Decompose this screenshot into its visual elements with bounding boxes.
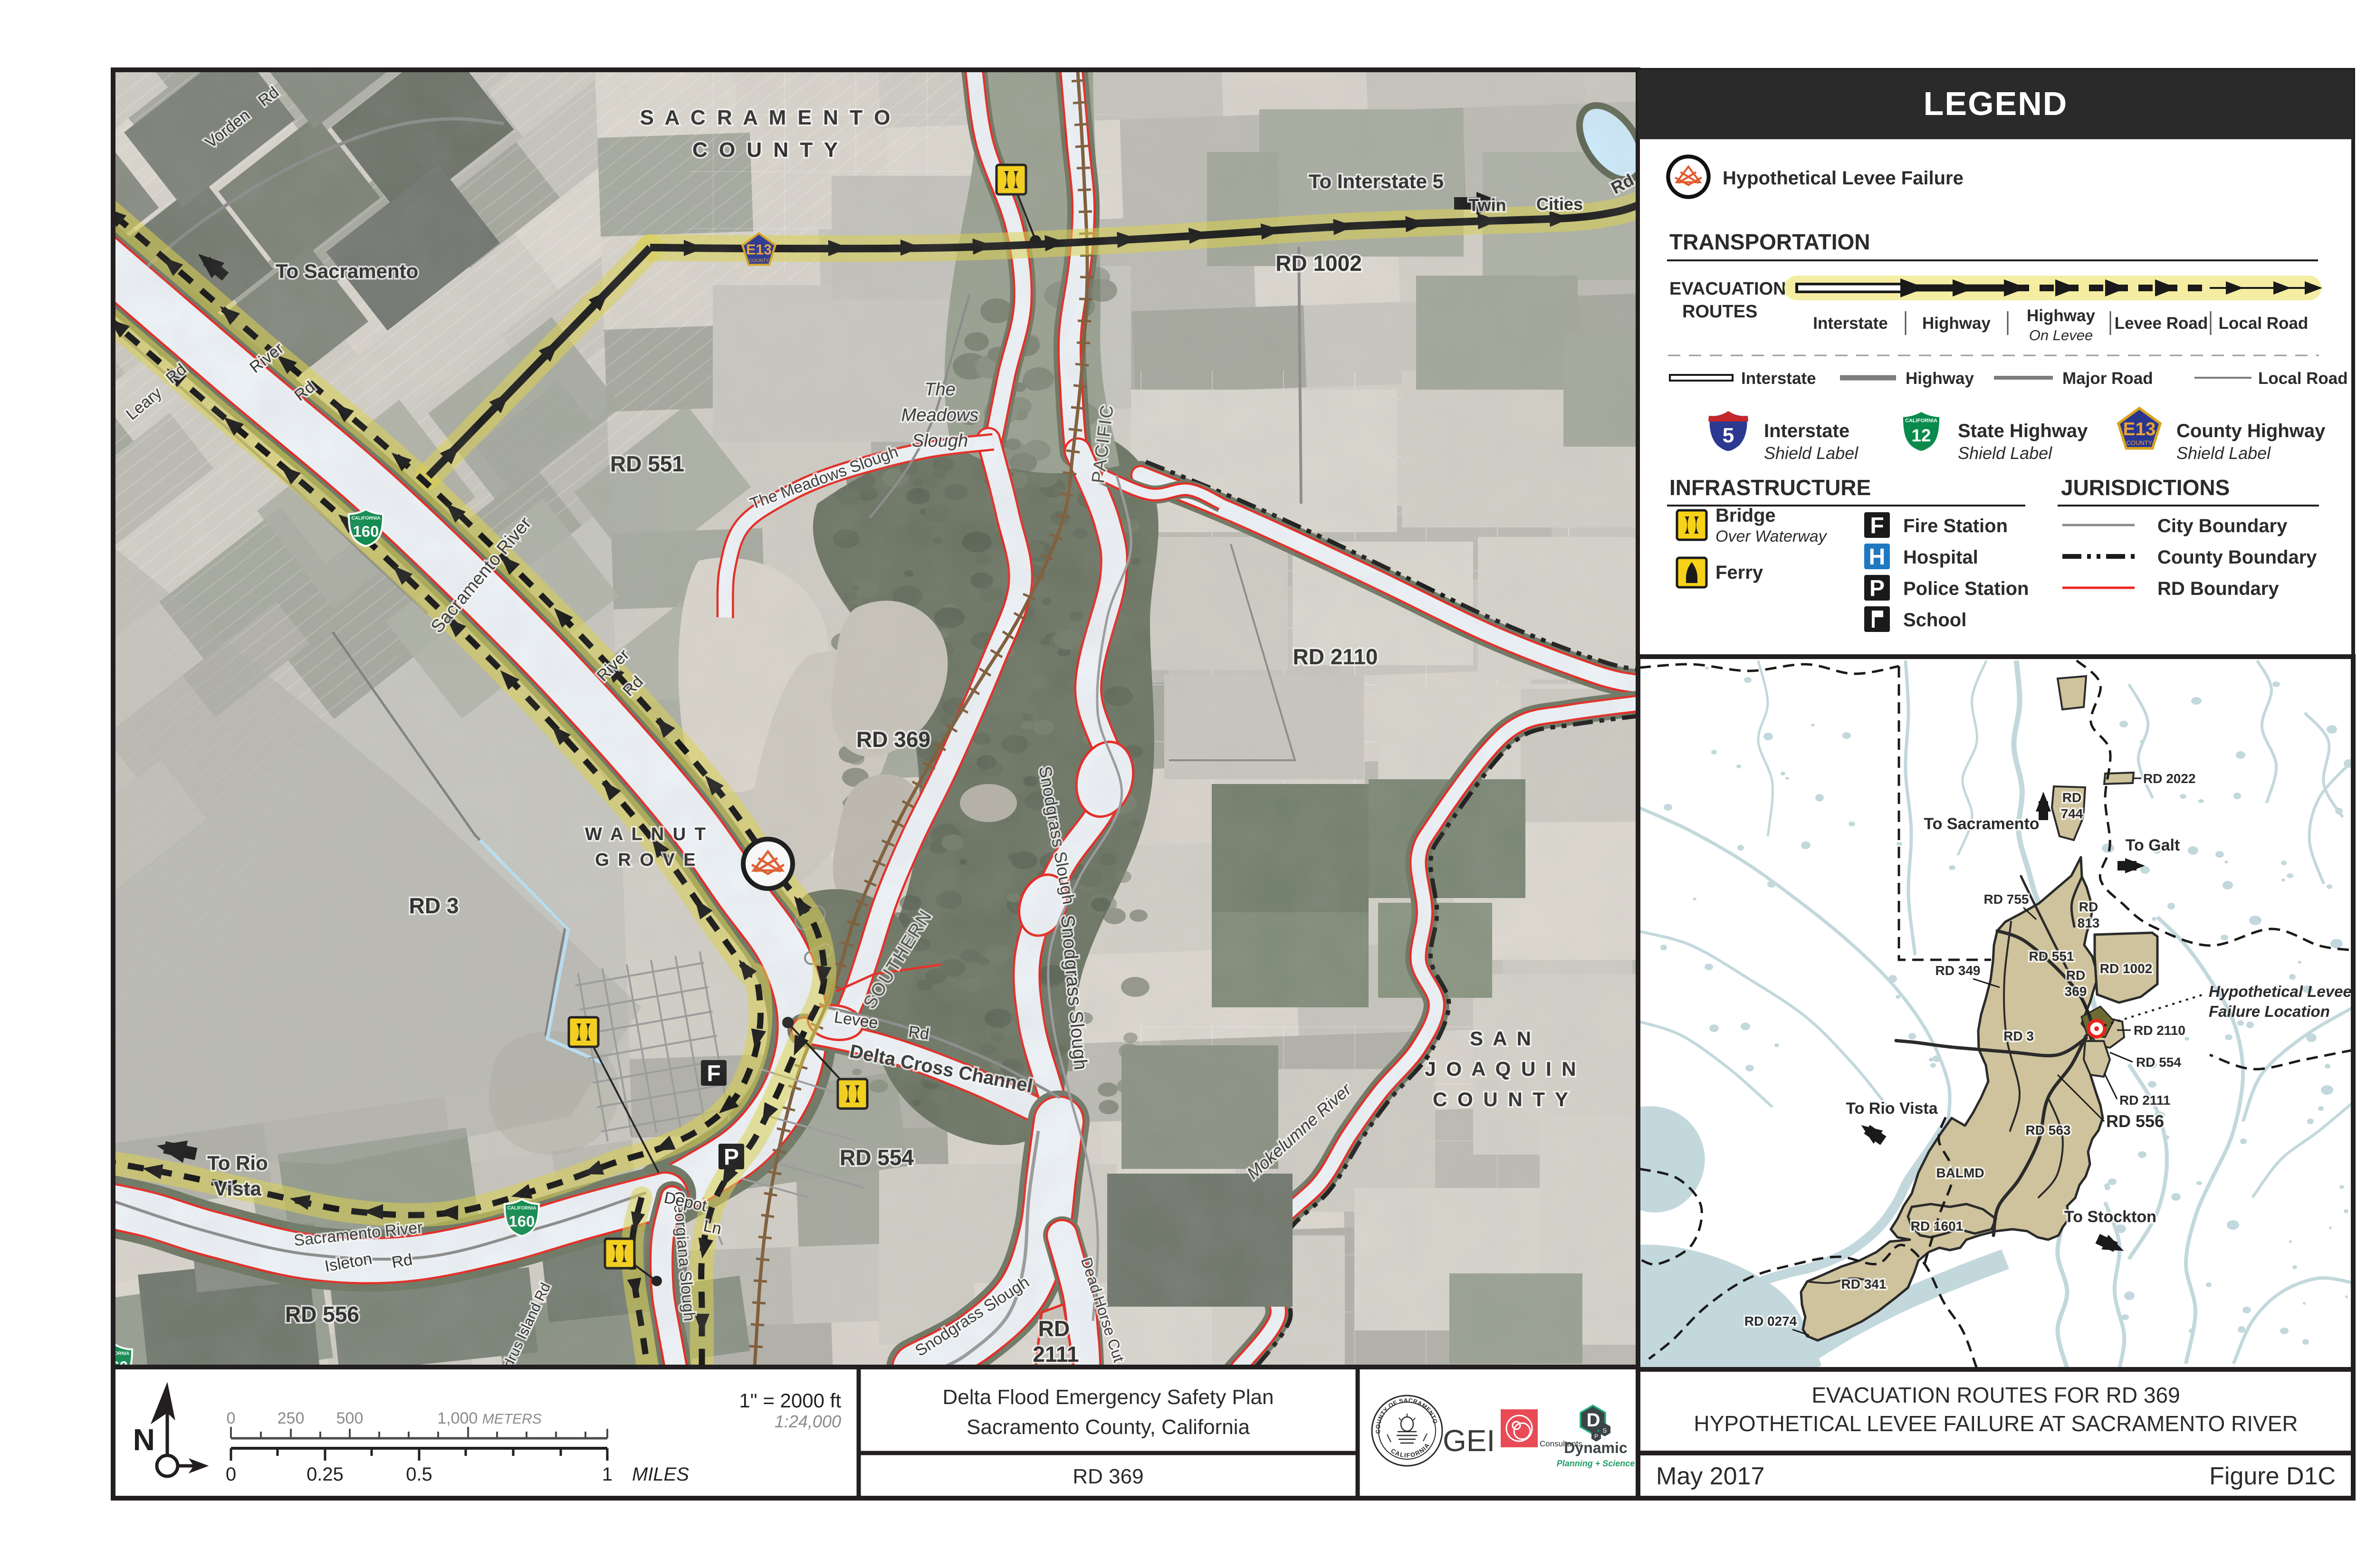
svg-text:Highway: Highway [1906,369,1974,388]
svg-text:Over Waterway: Over Waterway [1715,527,1828,545]
svg-text:City Boundary: City Boundary [2157,516,2288,536]
svg-text:1:24,000: 1:24,000 [775,1412,841,1431]
svg-text:Highway: Highway [2027,306,2095,325]
svg-text:Bridge: Bridge [1715,505,1776,526]
svg-text:RD 556: RD 556 [2106,1111,2164,1131]
svg-text:RD 0274: RD 0274 [1744,1314,1797,1329]
svg-text:To Galt: To Galt [2126,836,2180,854]
svg-text:0.5: 0.5 [406,1464,432,1485]
svg-text:INFRASTRUCTURE: INFRASTRUCTURE [1669,475,1871,500]
svg-text:Planning + Science: Planning + Science [1557,1459,1635,1468]
svg-text:Interstate: Interstate [1813,314,1888,333]
svg-text:Police Station: Police Station [1903,578,2029,599]
svg-text:E13: E13 [2123,419,2156,440]
svg-text:H: H [1869,545,1886,570]
svg-text:P: P [1594,1433,1598,1440]
svg-text:0.25: 0.25 [307,1464,344,1485]
svg-text:250: 250 [278,1409,305,1427]
svg-text:EVACUATION: EVACUATION [1669,279,1786,299]
svg-text:JURISDICTIONS: JURISDICTIONS [2061,475,2230,500]
svg-text:TRANSPORTATION: TRANSPORTATION [1669,229,1870,254]
svg-text:To Rio Vista: To Rio Vista [1846,1100,1938,1118]
svg-text:BALMD: BALMD [1936,1166,1984,1180]
svg-text:Shield Label: Shield Label [1958,443,2052,463]
svg-text:0: 0 [226,1464,236,1485]
svg-text:Sacramento County, California: Sacramento County, California [967,1415,1250,1439]
svg-text:RD 369: RD 369 [1073,1465,1143,1488]
svg-text:RD 554: RD 554 [2136,1055,2181,1070]
svg-text:D: D [1587,1410,1600,1431]
svg-text:HYPOTHETICAL LEVEE FAILURE AT: HYPOTHETICAL LEVEE FAILURE AT SACRAMENTO… [1694,1411,2298,1436]
svg-text:EVACUATION ROUTES FOR RD 369: EVACUATION ROUTES FOR RD 369 [1811,1383,2180,1407]
svg-text:1: 1 [602,1464,613,1485]
svg-text:N: N [133,1423,155,1457]
svg-text:5: 5 [1723,424,1734,447]
svg-text:Local Road: Local Road [2258,369,2348,388]
svg-text:RD 341: RD 341 [1841,1277,1887,1291]
svg-text:RD: RD [2066,968,2085,983]
svg-text:Shield Label: Shield Label [1764,443,1859,463]
svg-text:Ferry: Ferry [1715,562,1763,583]
svg-text:School: School [1903,610,1966,631]
svg-text:Shield Label: Shield Label [2176,443,2271,463]
svg-text:1" = 2000 ft: 1" = 2000 ft [739,1389,841,1412]
svg-text:RD 2110: RD 2110 [2134,1023,2185,1038]
svg-text:F: F [1870,513,1884,538]
svg-text:Local Road: Local Road [2219,314,2309,333]
svg-text:County Highway: County Highway [2176,421,2326,441]
svg-text:Fire Station: Fire Station [1903,516,2008,536]
svg-text:Hypothetical Levee Failure: Hypothetical Levee Failure [1723,168,1964,189]
svg-text:RD 3: RD 3 [2003,1029,2034,1043]
svg-text:To Sacramento: To Sacramento [1924,815,2039,833]
svg-text:RD 563: RD 563 [2026,1123,2071,1138]
svg-text:RD 551: RD 551 [2029,949,2074,964]
svg-text:Delta Flood Emergency Safety P: Delta Flood Emergency Safety Plan [942,1386,1274,1409]
svg-text:RD 349: RD 349 [1935,963,1981,978]
svg-text:Interstate: Interstate [1764,421,1849,441]
svg-text:Failure Location: Failure Location [2209,1003,2330,1020]
svg-text:744: 744 [2061,806,2083,821]
svg-text:RD 755: RD 755 [1984,892,2029,907]
svg-text:RD 1002: RD 1002 [2100,961,2153,976]
svg-text:RD: RD [2062,790,2081,805]
svg-text:May 2017: May 2017 [1656,1463,1764,1490]
svg-text:500: 500 [336,1409,364,1427]
svg-text:ROUTES: ROUTES [1682,302,1757,322]
svg-text:1,000 METERS: 1,000 METERS [437,1409,542,1427]
svg-text:Interstate: Interstate [1741,369,1816,388]
svg-text:Hospital: Hospital [1903,547,1978,568]
svg-text:RD 2111: RD 2111 [2119,1093,2170,1108]
svg-text:P: P [1869,576,1885,601]
svg-text:RD: RD [2079,899,2098,914]
svg-text:12: 12 [1912,426,1931,445]
svg-text:To Stockton: To Stockton [2064,1208,2156,1226]
svg-text:LEGEND: LEGEND [1924,85,2068,122]
svg-text:Figure D1C: Figure D1C [2209,1463,2336,1490]
svg-text:On Levee: On Levee [2029,327,2093,344]
svg-text:Major Road: Major Road [2062,369,2153,388]
svg-text:0: 0 [227,1409,236,1427]
svg-text:COUNTY: COUNTY [2127,439,2153,446]
svg-text:813: 813 [2078,916,2100,930]
svg-text:County Boundary: County Boundary [2157,547,2317,568]
svg-text:S: S [1603,1427,1607,1434]
svg-text:CALIFORNIA: CALIFORNIA [1905,418,1937,423]
svg-text:RD 2022: RD 2022 [2143,771,2196,786]
svg-text:Highway: Highway [1922,314,1991,333]
svg-text:369: 369 [2065,984,2087,999]
svg-text:State Highway: State Highway [1958,421,2088,441]
svg-text:Dynamic: Dynamic [1564,1439,1627,1456]
svg-text:GEI: GEI [1443,1424,1495,1458]
svg-text:RD 1601: RD 1601 [1911,1219,1964,1233]
svg-text:Hypothetical Levee: Hypothetical Levee [2209,983,2352,1000]
svg-text:MILES: MILES [632,1464,689,1485]
svg-text:RD Boundary: RD Boundary [2157,578,2279,599]
svg-text:Levee Road: Levee Road [2115,314,2208,333]
